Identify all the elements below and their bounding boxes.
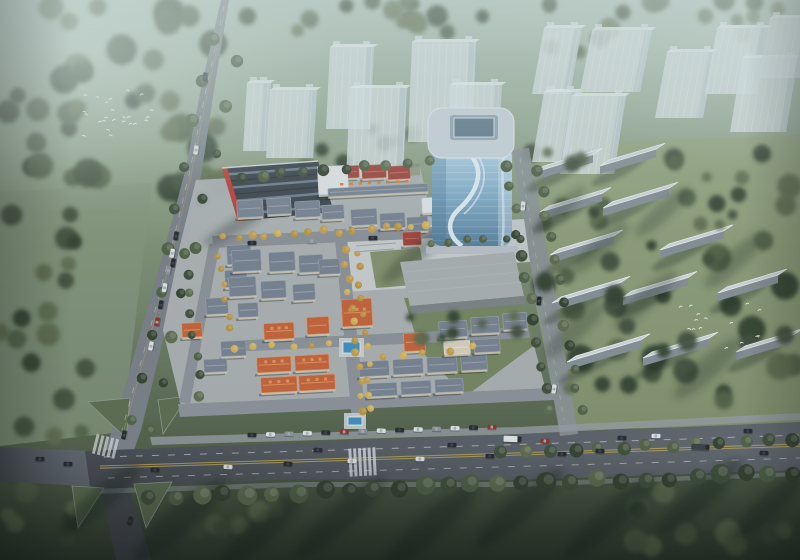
forest-tree bbox=[72, 61, 94, 83]
forest-tree bbox=[14, 417, 35, 438]
forest-tree bbox=[656, 343, 670, 357]
forest-tree bbox=[315, 143, 328, 156]
forest-tree bbox=[68, 99, 86, 117]
forest-tree bbox=[619, 318, 635, 334]
car bbox=[223, 465, 232, 471]
tree-highlight bbox=[791, 435, 798, 442]
tree-highlight bbox=[428, 157, 433, 162]
car bbox=[340, 430, 349, 436]
market-awning bbox=[386, 181, 390, 184]
ghost-tower-parapet bbox=[757, 22, 764, 26]
tree-highlight bbox=[229, 325, 233, 329]
tree-highlight bbox=[223, 297, 226, 300]
ghost-tower-parapet bbox=[567, 86, 574, 90]
forest-tree bbox=[440, 24, 455, 39]
building bbox=[258, 376, 297, 396]
tree-highlight bbox=[271, 342, 274, 345]
tree-highlight bbox=[224, 101, 230, 107]
car-windshield bbox=[153, 468, 156, 471]
forest-tree bbox=[26, 98, 50, 122]
tree-highlight bbox=[519, 236, 523, 240]
truck-trailer bbox=[691, 444, 705, 450]
car-windshield bbox=[316, 448, 319, 451]
building bbox=[424, 356, 457, 376]
car bbox=[266, 432, 275, 438]
forest-tree bbox=[693, 217, 707, 231]
ghost-tower-parapet bbox=[575, 90, 582, 94]
forest-tree bbox=[1, 204, 22, 225]
tree-highlight bbox=[180, 290, 185, 295]
tree-highlight bbox=[523, 274, 528, 279]
forest-tree bbox=[407, 13, 428, 34]
building bbox=[458, 354, 487, 374]
tree-highlight bbox=[717, 439, 723, 445]
tree-highlight bbox=[197, 353, 201, 357]
ghost-tower-parapet bbox=[745, 52, 752, 56]
car-windshield bbox=[324, 431, 327, 434]
tree-highlight bbox=[293, 231, 297, 235]
tree-highlight bbox=[791, 469, 799, 477]
forest-tree bbox=[73, 159, 102, 188]
ghost-tower-parapet bbox=[333, 41, 340, 45]
forest-tree bbox=[414, 332, 427, 345]
building bbox=[296, 374, 335, 394]
truck bbox=[691, 444, 710, 452]
tree-highlight bbox=[191, 332, 195, 336]
car-windshield bbox=[435, 427, 438, 430]
tree-highlight bbox=[357, 282, 361, 286]
tree-highlight bbox=[515, 231, 520, 236]
tree-highlight bbox=[447, 240, 451, 244]
tree-highlight bbox=[508, 183, 513, 188]
tree-highlight bbox=[559, 276, 564, 281]
tree-highlight bbox=[540, 363, 545, 368]
tree-highlight bbox=[425, 222, 429, 226]
forest-tree bbox=[677, 331, 697, 351]
tree-highlight bbox=[263, 234, 267, 238]
tree-highlight bbox=[200, 488, 209, 497]
forest-tree bbox=[542, 147, 552, 157]
tree-highlight bbox=[505, 162, 511, 168]
tree-highlight bbox=[410, 225, 413, 228]
tree-highlight bbox=[563, 299, 568, 304]
tree-highlight bbox=[262, 172, 268, 178]
forest-tree bbox=[476, 10, 489, 23]
forest-tree bbox=[53, 388, 75, 410]
truck-cab bbox=[517, 436, 521, 442]
car-windshield bbox=[361, 430, 364, 433]
tree-highlight bbox=[367, 344, 371, 348]
ghost-tower-parapet bbox=[773, 12, 780, 16]
ghost-tower-parapet bbox=[547, 22, 554, 26]
tower-roof-inset bbox=[454, 118, 494, 137]
forest-tree bbox=[753, 145, 771, 163]
roof-dormer bbox=[264, 360, 267, 363]
swimming-pool bbox=[348, 417, 362, 425]
roof-dormer bbox=[363, 308, 366, 311]
forest-tree bbox=[754, 231, 773, 250]
car-windshield bbox=[286, 462, 289, 465]
car bbox=[469, 425, 478, 431]
tree-highlight bbox=[767, 435, 773, 441]
tree-highlight bbox=[348, 485, 356, 493]
tree-highlight bbox=[323, 483, 332, 492]
tree-highlight bbox=[542, 188, 548, 194]
car bbox=[540, 439, 549, 445]
building bbox=[290, 283, 315, 304]
ghost-tower-parapet bbox=[363, 41, 370, 45]
tree-highlight bbox=[371, 226, 375, 230]
car-windshield bbox=[450, 443, 453, 446]
tree-highlight bbox=[211, 34, 218, 41]
forest-tree bbox=[213, 519, 232, 538]
tree-highlight bbox=[496, 477, 504, 485]
forest-tree bbox=[136, 84, 156, 104]
ghost-tower-parapet bbox=[670, 46, 677, 50]
tree-highlight bbox=[543, 212, 548, 217]
car bbox=[617, 436, 626, 442]
car-windshield bbox=[746, 429, 749, 432]
building bbox=[258, 280, 287, 302]
tree-highlight bbox=[384, 162, 389, 167]
tree-highlight bbox=[382, 354, 385, 357]
car bbox=[321, 430, 330, 436]
car-windshield bbox=[418, 457, 421, 460]
car-windshield bbox=[490, 425, 493, 428]
forest-tree bbox=[620, 376, 638, 394]
tree-highlight bbox=[188, 290, 192, 294]
truck-trailer bbox=[503, 436, 517, 442]
car-windshield bbox=[287, 432, 290, 435]
building bbox=[254, 356, 291, 376]
forest-tree bbox=[426, 5, 448, 27]
building bbox=[432, 378, 463, 396]
tower-base bbox=[426, 246, 518, 254]
tree-highlight bbox=[506, 236, 510, 240]
market-awning bbox=[359, 182, 363, 185]
car-windshield bbox=[552, 388, 556, 391]
tree-highlight bbox=[549, 446, 556, 453]
tree-highlight bbox=[482, 236, 486, 240]
building bbox=[226, 276, 257, 300]
car bbox=[557, 452, 566, 458]
tree-highlight bbox=[368, 393, 371, 396]
tree-highlight bbox=[199, 371, 204, 376]
tree-highlight bbox=[402, 353, 406, 357]
tree-highlight bbox=[553, 256, 558, 261]
car bbox=[520, 201, 527, 211]
car-windshield bbox=[417, 428, 420, 431]
tree-highlight bbox=[546, 384, 551, 389]
tree-highlight bbox=[351, 228, 355, 232]
tree-highlight bbox=[581, 406, 586, 411]
roof-dormer bbox=[315, 378, 318, 381]
tree-highlight bbox=[364, 331, 367, 334]
car bbox=[63, 462, 72, 468]
car bbox=[536, 296, 543, 306]
forest-tree bbox=[143, 49, 164, 70]
tree-highlight bbox=[279, 168, 285, 174]
forest-tree bbox=[62, 207, 78, 223]
forest-tree bbox=[727, 210, 737, 220]
tree-highlight bbox=[544, 474, 554, 484]
tree-highlight bbox=[173, 205, 178, 210]
building bbox=[339, 298, 373, 330]
ghost-tower-parapet bbox=[273, 84, 280, 88]
tree-highlight bbox=[397, 482, 406, 491]
tree-highlight bbox=[239, 235, 242, 238]
tree-highlight bbox=[472, 343, 475, 346]
building bbox=[266, 251, 296, 275]
car-windshield bbox=[66, 462, 69, 465]
ghost-tower-parapet bbox=[547, 86, 554, 90]
tree-highlight bbox=[644, 440, 650, 446]
forest-tree bbox=[76, 359, 95, 378]
forest-tree bbox=[291, 24, 304, 37]
roof-dormer bbox=[281, 359, 284, 362]
car bbox=[307, 239, 316, 245]
car bbox=[651, 434, 660, 440]
tree-highlight bbox=[130, 416, 135, 421]
forest-tree bbox=[160, 122, 179, 141]
forest-tree bbox=[776, 522, 793, 539]
ghost-tower-parapet bbox=[571, 22, 578, 26]
tree-highlight bbox=[311, 343, 314, 346]
tree-highlight bbox=[229, 314, 232, 317]
forest-tree bbox=[61, 257, 76, 272]
car bbox=[447, 443, 456, 449]
roof-dormer bbox=[307, 378, 310, 381]
tree-highlight bbox=[359, 364, 362, 367]
forest-tree bbox=[594, 376, 610, 392]
roof-dormer bbox=[272, 360, 275, 363]
forest-tree bbox=[775, 194, 796, 215]
tree-highlight bbox=[531, 315, 537, 321]
tree-highlight bbox=[162, 379, 167, 384]
tree-highlight bbox=[354, 349, 358, 353]
tree-highlight bbox=[183, 250, 188, 255]
tree-highlight bbox=[346, 290, 349, 293]
forest-tree bbox=[7, 329, 26, 348]
tree-highlight bbox=[302, 168, 307, 173]
roof-dormer bbox=[319, 357, 322, 360]
car bbox=[377, 428, 386, 434]
ghost-tower-parapet bbox=[615, 90, 622, 94]
tree-highlight bbox=[362, 408, 366, 412]
tree-highlight bbox=[536, 166, 542, 172]
car-windshield bbox=[398, 428, 401, 431]
ghost-tower-parapet bbox=[415, 36, 422, 40]
roof-dormer bbox=[286, 379, 289, 382]
tree-highlight bbox=[550, 233, 555, 238]
roof-dormer bbox=[278, 326, 281, 329]
market-awning bbox=[377, 181, 381, 184]
car-windshield bbox=[343, 430, 346, 433]
tree-highlight bbox=[499, 447, 505, 453]
tree-highlight bbox=[349, 276, 353, 280]
market-awning bbox=[368, 182, 372, 185]
forest-tree bbox=[26, 133, 46, 153]
forest-tree bbox=[6, 515, 24, 533]
tree-highlight bbox=[151, 331, 156, 336]
tree-highlight bbox=[354, 338, 358, 342]
building bbox=[441, 340, 470, 358]
tree-highlight bbox=[270, 488, 278, 496]
tree-highlight bbox=[366, 377, 370, 381]
tree-highlight bbox=[406, 160, 411, 165]
car bbox=[759, 451, 768, 457]
forest-tree bbox=[615, 5, 630, 20]
forest-tree bbox=[735, 171, 749, 185]
forest-tree bbox=[477, 319, 486, 328]
tree-highlight bbox=[694, 438, 700, 444]
forest-tree bbox=[67, 235, 82, 250]
tree-highlight bbox=[371, 483, 379, 491]
forest-tree bbox=[702, 172, 712, 182]
car bbox=[595, 449, 604, 455]
car bbox=[247, 241, 256, 247]
roof-dormer bbox=[324, 377, 327, 380]
tree-highlight bbox=[343, 262, 347, 266]
ghost-tower-parapet bbox=[453, 79, 460, 83]
car bbox=[313, 448, 322, 454]
tree-highlight bbox=[363, 312, 366, 315]
car bbox=[347, 459, 356, 465]
tree-highlight bbox=[696, 470, 704, 478]
building bbox=[304, 316, 330, 338]
tree-highlight bbox=[466, 236, 470, 240]
forest-tree bbox=[57, 272, 74, 289]
forest-tree bbox=[714, 390, 733, 409]
tree-highlight bbox=[345, 247, 349, 251]
forest-tree bbox=[22, 353, 41, 372]
forest-tree bbox=[106, 34, 137, 65]
car bbox=[247, 433, 256, 439]
car-windshield bbox=[472, 426, 475, 429]
building bbox=[292, 200, 320, 221]
tree-highlight bbox=[297, 487, 306, 496]
tower-body-group bbox=[432, 146, 512, 246]
tree-highlight bbox=[141, 374, 146, 379]
roof-dormer bbox=[277, 380, 280, 383]
forest-tree bbox=[238, 7, 256, 25]
forest-tree bbox=[667, 155, 682, 170]
tree-highlight bbox=[596, 444, 602, 450]
building bbox=[261, 322, 294, 343]
tree-highlight bbox=[146, 492, 153, 499]
tree-highlight bbox=[519, 477, 527, 485]
tree-highlight bbox=[240, 174, 245, 179]
tree-highlight bbox=[520, 251, 526, 257]
car bbox=[415, 457, 424, 463]
tree-highlight bbox=[245, 488, 255, 498]
tree-highlight bbox=[447, 478, 455, 486]
building bbox=[234, 199, 264, 221]
forest-tree bbox=[45, 427, 63, 445]
market-awning bbox=[405, 180, 409, 183]
tree-highlight bbox=[573, 385, 578, 390]
tree-highlight bbox=[531, 294, 537, 300]
car bbox=[303, 431, 312, 437]
forest-tree bbox=[37, 323, 60, 346]
tree-highlight bbox=[198, 392, 203, 397]
tree-highlight bbox=[672, 443, 678, 449]
tree-highlight bbox=[170, 332, 176, 338]
tree-highlight bbox=[233, 346, 237, 350]
forest-tree bbox=[60, 13, 78, 31]
tree-highlight bbox=[194, 244, 200, 250]
car bbox=[358, 429, 367, 435]
car-windshield bbox=[537, 300, 540, 303]
tree-highlight bbox=[224, 282, 227, 285]
car-windshield bbox=[250, 241, 253, 244]
building bbox=[398, 380, 431, 398]
tree-highlight bbox=[645, 475, 653, 483]
roof-dormer bbox=[310, 358, 313, 361]
forest-tree bbox=[731, 14, 744, 27]
car-windshield bbox=[203, 76, 207, 79]
car bbox=[395, 428, 404, 434]
tree-highlight bbox=[575, 445, 582, 452]
building bbox=[201, 358, 227, 376]
ghost-tower-parapet bbox=[250, 77, 257, 81]
car-windshield bbox=[762, 451, 765, 454]
forest-tree bbox=[564, 156, 580, 172]
car-windshield bbox=[488, 454, 491, 457]
west-road bbox=[0, 447, 97, 487]
forest-tree bbox=[155, 9, 181, 35]
forest-tree bbox=[605, 285, 625, 305]
forest-tree bbox=[301, 10, 319, 28]
tree-highlight bbox=[547, 406, 552, 411]
truck-cab bbox=[705, 444, 709, 450]
tree-highlight bbox=[360, 394, 363, 397]
car bbox=[450, 426, 459, 432]
roof-dormer bbox=[269, 380, 272, 383]
building bbox=[235, 302, 258, 321]
tree-highlight bbox=[322, 166, 328, 172]
forest-tree bbox=[746, 10, 760, 24]
building bbox=[356, 360, 389, 380]
podium-building bbox=[400, 252, 525, 314]
tree-highlight bbox=[353, 318, 357, 322]
market-awning bbox=[396, 180, 400, 183]
tree-highlight bbox=[222, 234, 225, 237]
car-windshield bbox=[620, 436, 623, 439]
forest-tree bbox=[776, 326, 794, 344]
tree-highlight bbox=[765, 468, 773, 476]
tree-highlight bbox=[449, 349, 453, 353]
tree-highlight bbox=[352, 306, 356, 310]
tree-highlight bbox=[397, 224, 401, 228]
tree-highlight bbox=[430, 241, 434, 245]
aerial-rendering-stage bbox=[0, 0, 800, 560]
car-windshield bbox=[310, 239, 313, 242]
ghost-tower-parapet bbox=[595, 24, 602, 28]
car bbox=[283, 462, 292, 468]
tree-highlight bbox=[515, 205, 520, 210]
tree-highlight bbox=[423, 478, 433, 488]
car bbox=[414, 427, 423, 433]
car bbox=[743, 429, 752, 435]
car-windshield bbox=[269, 433, 272, 436]
car-windshield bbox=[306, 432, 309, 435]
tree-highlight bbox=[252, 232, 256, 236]
ghost-tower-parapet bbox=[353, 82, 360, 86]
tree-highlight bbox=[293, 344, 297, 348]
forest-tree bbox=[646, 240, 657, 251]
car-windshield bbox=[380, 429, 383, 432]
